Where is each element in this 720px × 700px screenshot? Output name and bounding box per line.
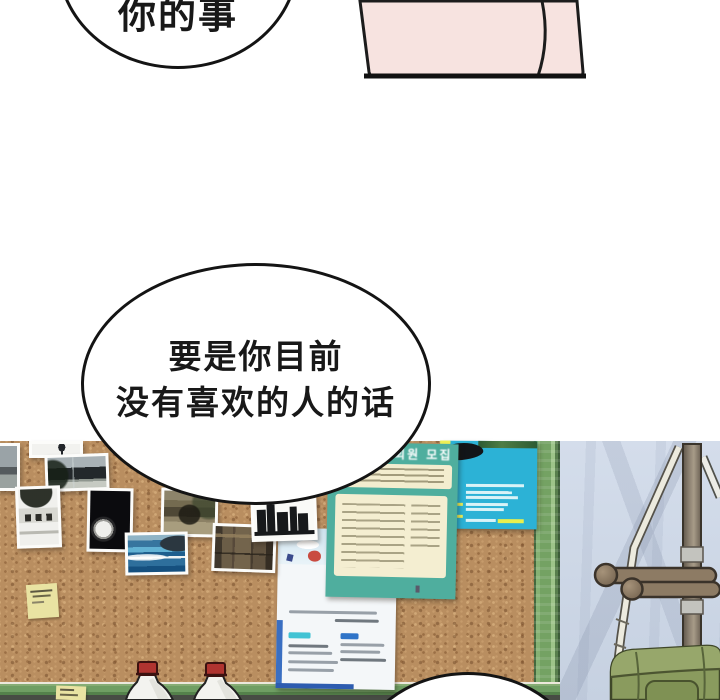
speech-bubble-middle-line2: 没有喜欢的人的话: [84, 376, 428, 424]
strap-right: [703, 457, 720, 497]
rack-peg-lower: [622, 579, 720, 600]
rack-metal-collar: [681, 600, 703, 614]
character-torso: [350, 0, 590, 82]
speech-bubble-top: 你的事: [57, 0, 299, 69]
rack-metal-collar: [681, 547, 703, 562]
water-bottle: [194, 663, 241, 700]
webtoon-panel: 你的事: [0, 0, 720, 700]
speech-bubble-middle: 要是你目前 没有喜欢的人的话: [81, 263, 431, 505]
strap-left: [614, 447, 679, 669]
speech-bubble-top-text: 你的事: [60, 0, 296, 39]
shirt-body: [360, 1, 583, 77]
speech-bubble-middle-line1: 要是你目前: [84, 330, 428, 378]
olive-bag: [611, 646, 720, 700]
water-bottle: [126, 662, 173, 700]
